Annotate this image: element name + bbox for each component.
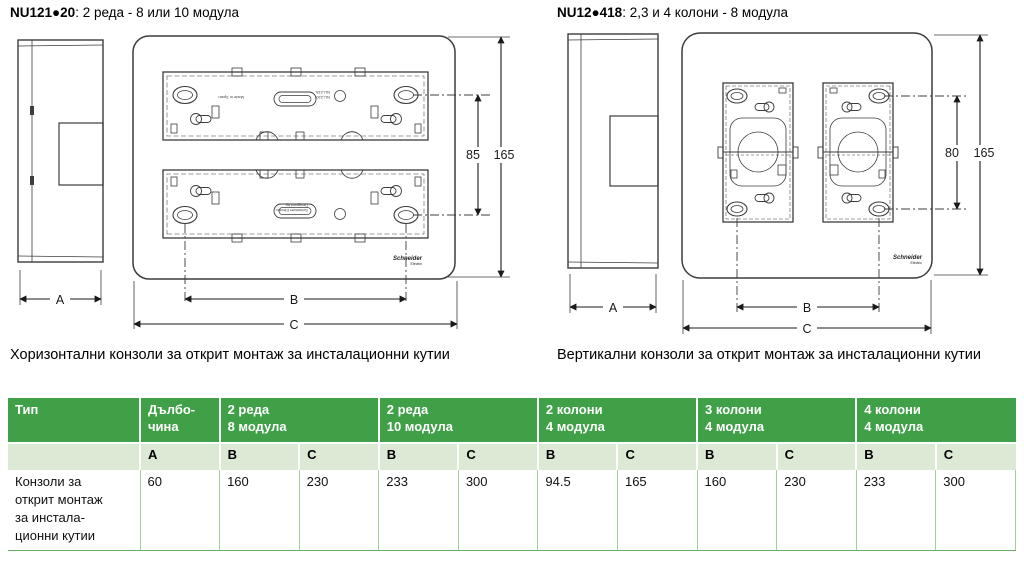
value-4cols4-c: 300 [936,470,1016,551]
dimensions-table: Тип Дълбо- чина 2 реда 8 модула 2 реда 1… [8,398,1016,551]
right-dim-a-label: A [609,301,618,315]
value-2rows10-c: 300 [458,470,538,551]
left-dim-outer-label: 165 [494,148,515,162]
microtext-code-2: NU-220- [314,95,330,100]
header-2rows-10mod: 2 реда 10 модула [379,398,538,443]
header-2cols-4mod: 2 колони 4 модула [538,398,697,443]
microtext-designed-by: Designed by [286,203,308,208]
left-dim-a-label: A [56,293,65,307]
right-bottom-dimensions: A B C [570,218,931,336]
value-2rows10-b: 233 [379,470,459,551]
right-dim-outer-label: 165 [974,146,995,160]
subheader-c: C [299,443,379,470]
left-side-view [18,40,103,262]
value-3cols4-b: 160 [697,470,777,551]
right-product-desc: : 2,3 и 4 колони - 8 модула [622,5,788,20]
value-2cols4-c: 165 [617,470,697,551]
table-header-row: Тип Дълбо- чина 2 реда 8 модула 2 реда 1… [8,398,1016,443]
subheader-b: B [697,443,777,470]
left-front-view: Made in Spain NU-218- NU-220- Designed b… [133,36,455,279]
value-3cols4-c: 230 [777,470,857,551]
subheader-b: B [379,443,459,470]
left-dim-c-label: C [289,318,298,332]
right-front-view: Schneider Electric [682,33,932,278]
header-2rows-8mod: 2 реда 8 модула [220,398,379,443]
brand-logo: Schneider Electric [393,256,423,266]
catalog-page: NU121●20: 2 реда - 8 или 10 модула NU12●… [0,0,1024,561]
microtext-made-in-spain: Made in Spain [218,95,244,100]
left-figure-title: NU121●20: 2 реда - 8 или 10 модула [10,4,239,21]
brand-logo: Schneider Electric [893,255,923,265]
right-dim-b-label: B [803,301,811,315]
row-label: Конзоли за открит монтаж за инстала- цио… [8,470,140,551]
header-depth: Дълбо- чина [140,398,220,443]
right-technical-drawing: Schneider Electric 80 165 [554,28,1024,346]
value-2rows8-b: 160 [220,470,300,551]
left-dim-b-label: B [290,293,298,307]
left-bottom-dimensions: A B C [20,224,457,332]
subheader-b: B [220,443,300,470]
left-product-code: NU121●20 [10,5,75,20]
microtext-code-1: NU-218- [314,90,330,95]
subheader-empty [8,443,140,470]
right-product-code: NU12●418 [557,5,622,20]
subheader-b: B [538,443,618,470]
svg-text:Electric: Electric [911,261,923,265]
table-data-row: Конзоли за открит монтаж за инстала- цио… [8,470,1016,551]
subheader-a: A [140,443,220,470]
value-2cols4-b: 94.5 [538,470,618,551]
value-2rows8-c: 230 [299,470,379,551]
left-product-desc: : 2 реда - 8 или 10 модула [75,5,239,20]
subheader-c: C [777,443,857,470]
subheader-c: C [458,443,538,470]
header-4cols-4mod: 4 колони 4 модула [856,398,1015,443]
value-4cols4-b: 233 [856,470,936,551]
header-3cols-4mod: 3 колони 4 модула [697,398,856,443]
subheader-c: C [936,443,1016,470]
right-figure-title: NU12●418: 2,3 и 4 колони - 8 модула [557,4,788,21]
left-dim-inner-label: 85 [466,148,480,162]
left-figure-caption: Хоризонтални конзоли за открит монтаж за… [10,346,530,365]
right-figure-caption: Вертикални конзоли за открит монтаж за и… [557,346,1017,365]
header-type: Тип [8,398,140,443]
microtext-designed-brand: Schneider Electric [276,208,308,213]
right-side-view [568,34,658,268]
subheader-b: B [856,443,936,470]
right-dim-c-label: C [802,322,811,336]
table-subheader-row: A B C B C B C B C B C [8,443,1016,470]
right-dim-inner-label: 80 [945,146,959,160]
subheader-c: C [617,443,697,470]
value-depth-a: 60 [140,470,220,551]
svg-text:Electric: Electric [411,262,423,266]
left-technical-drawing: Made in Spain NU-218- NU-220- Designed b… [8,28,538,346]
